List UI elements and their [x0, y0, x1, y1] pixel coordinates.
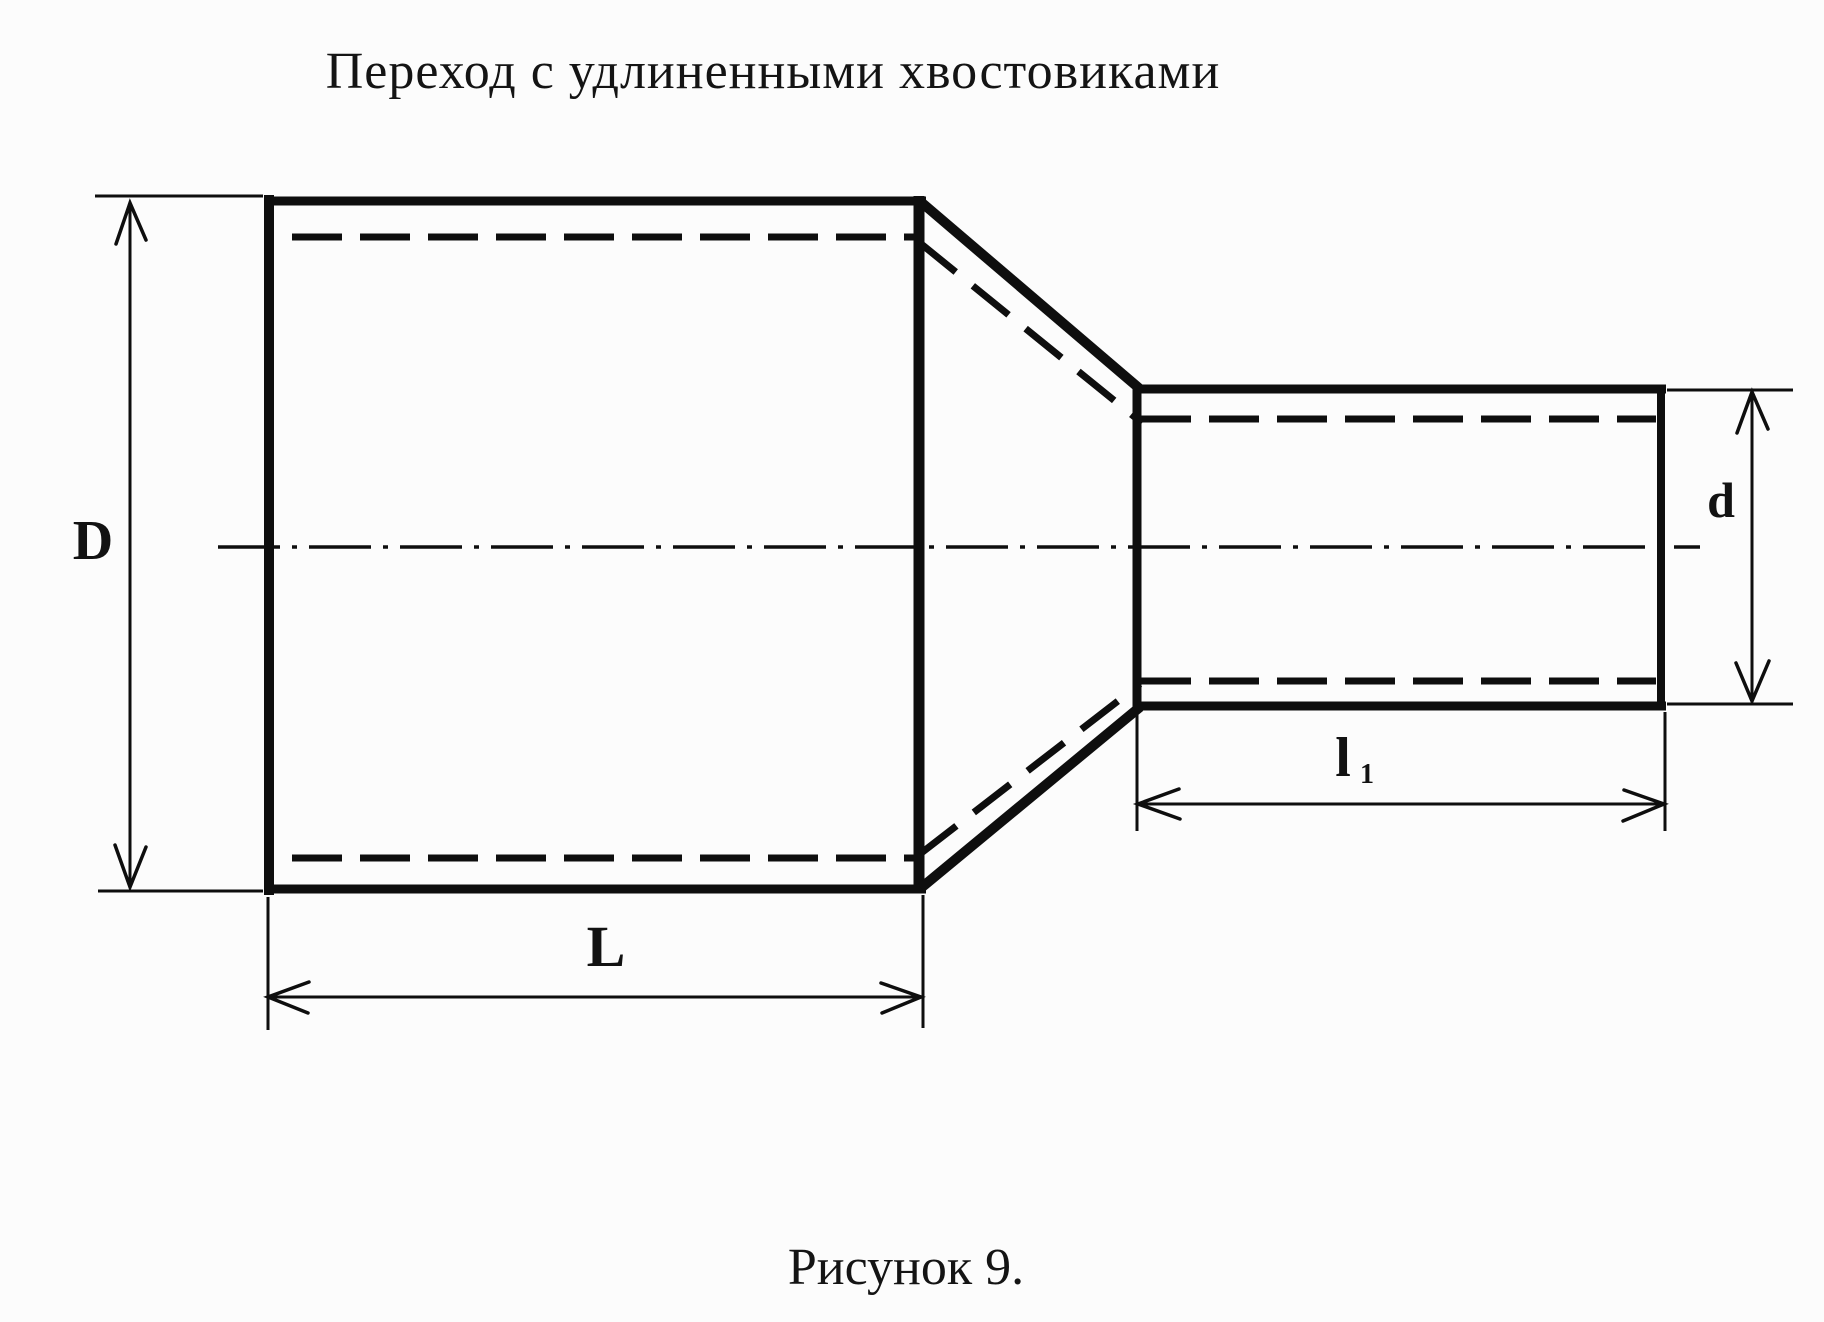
cone-bore-top-dashed-line [920, 243, 1142, 423]
label-small-diameter-d: d [1707, 472, 1735, 528]
drawing-sheet: Переход с удлиненными хвостовиками [0, 0, 1824, 1317]
label-small-length-subscript-1: 1 [1360, 759, 1374, 790]
cone-bore-bottom-dashed-line [920, 684, 1140, 854]
cone-top-edge [921, 202, 1140, 389]
cone-bottom-edge [921, 707, 1140, 888]
reducer-diagram: D L l 1 d [0, 0, 1824, 1317]
label-large-diameter-D: D [73, 510, 113, 572]
figure-caption: Рисунок 9. [0, 1238, 1812, 1297]
label-small-length-l: l [1335, 727, 1351, 789]
drawing-title: Переход с удлиненными хвостовиками [0, 42, 1546, 101]
label-large-length-L: L [587, 914, 626, 979]
